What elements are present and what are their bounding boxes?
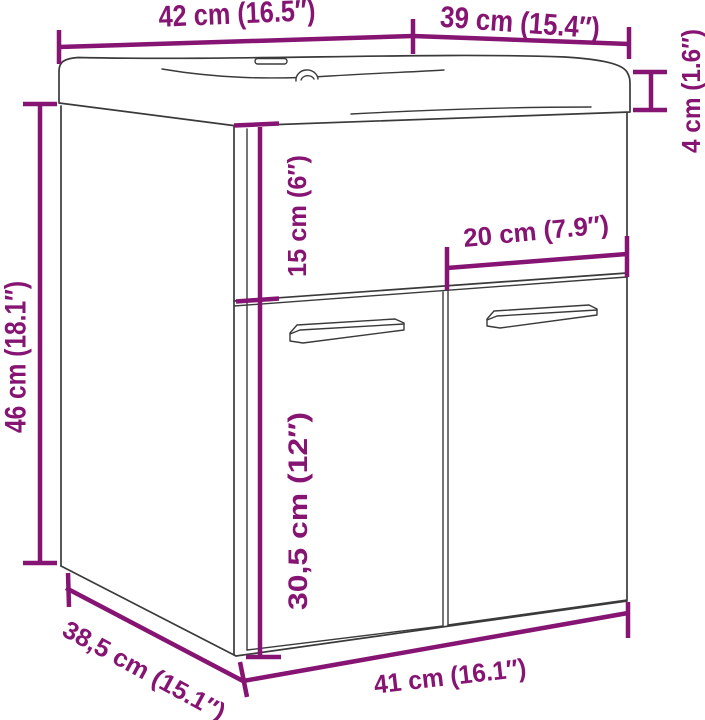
dim-top-width-line bbox=[59, 36, 413, 47]
sink-overflow-slot bbox=[255, 59, 287, 65]
label-bottom-width: 41 cm (16.1″) bbox=[372, 652, 527, 699]
dim-depth-tick-left bbox=[68, 573, 69, 607]
right-door-handle[interactable] bbox=[487, 305, 597, 328]
label-door-width: 20 cm (7.9″) bbox=[462, 209, 610, 253]
label-sink-thickness: 4 cm (1.6″) bbox=[676, 29, 705, 153]
vanity-dimension-diagram: 42 cm (16.5″) 39 cm (15.4″) 4 cm (1.6″) … bbox=[0, 0, 705, 720]
left-door-bottom-edge bbox=[247, 626, 443, 650]
label-cabinet-height: 46 cm (18.1″) bbox=[0, 281, 33, 433]
sink-outline bbox=[59, 55, 630, 126]
label-upper-panel-height: 15 cm (6″) bbox=[282, 155, 312, 277]
cabinet-drawing bbox=[59, 55, 630, 656]
right-door-bottom-edge bbox=[448, 600, 627, 625]
diagram-canvas: 42 cm (16.5″) 39 cm (15.4″) 4 cm (1.6″) … bbox=[0, 0, 705, 720]
cabinet-rail-bottom-line bbox=[234, 277, 627, 306]
label-top-width: 42 cm (16.5″) bbox=[158, 0, 316, 34]
left-door-handle[interactable] bbox=[290, 319, 404, 343]
dim-panel-tick-bottom bbox=[236, 299, 279, 302]
dim-door-width-line bbox=[447, 254, 627, 268]
label-door-height: 30,5 cm (12″) bbox=[283, 412, 313, 610]
dim-panel-tick-top bbox=[234, 124, 279, 126]
